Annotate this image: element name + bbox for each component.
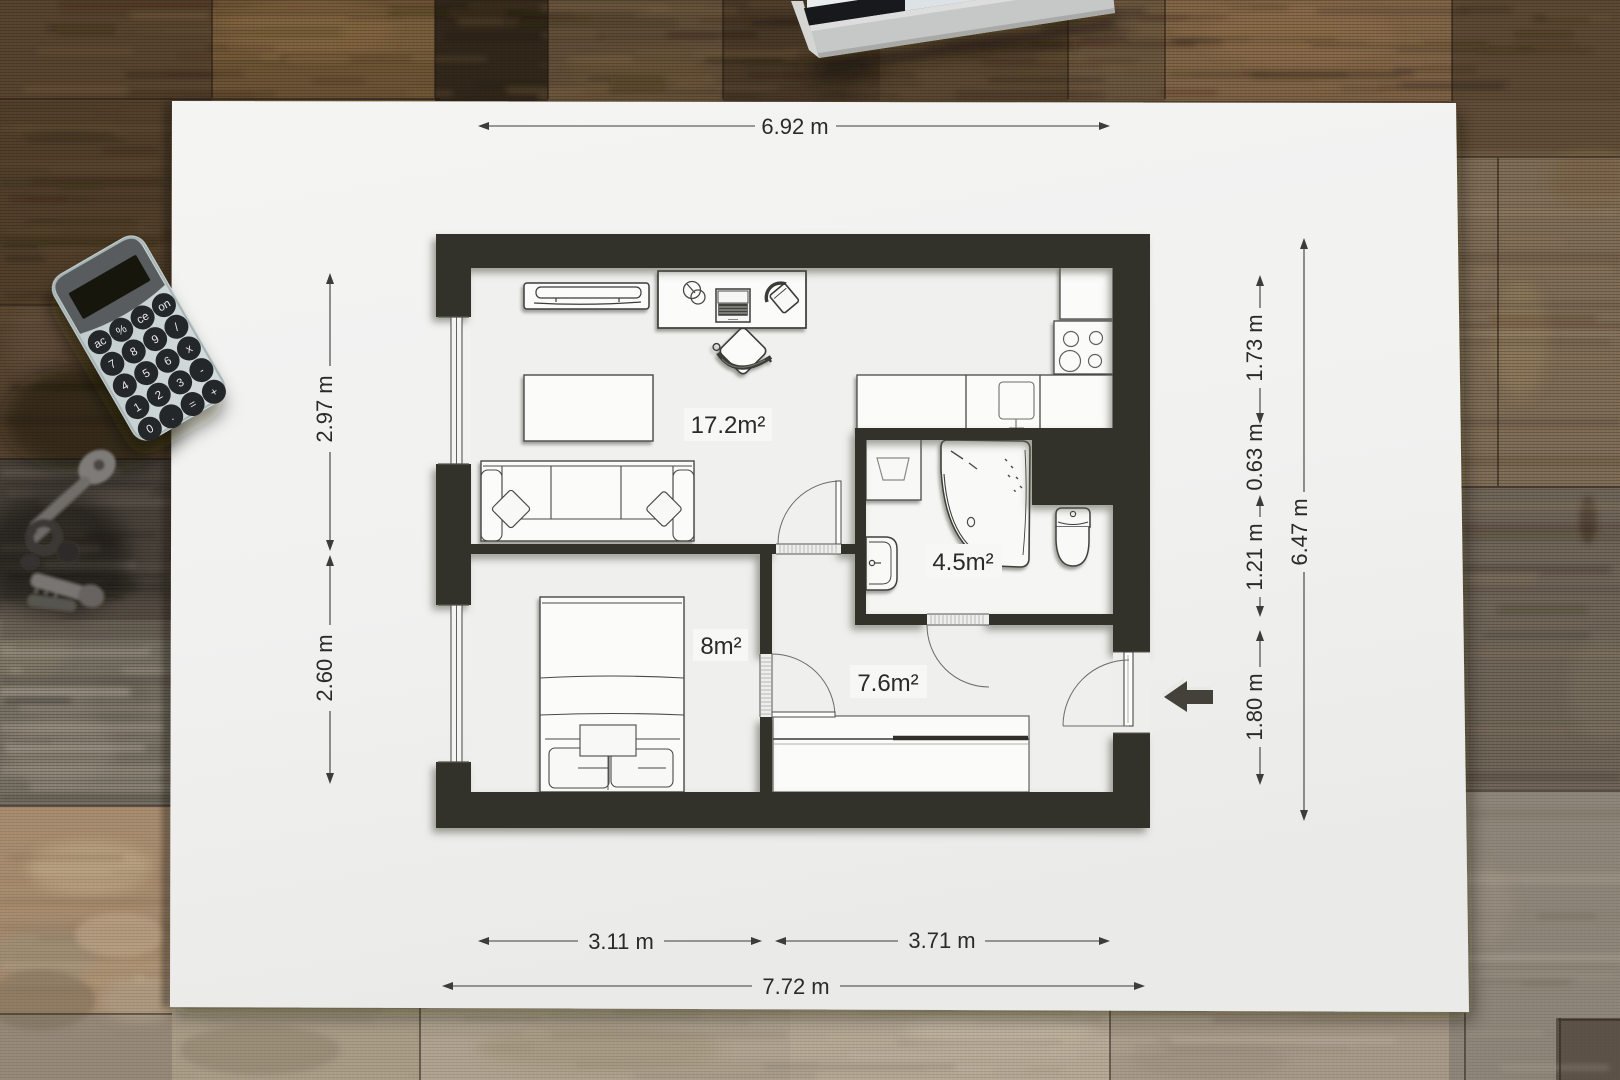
svg-text:2.60 m: 2.60 m: [312, 634, 337, 701]
svg-text:8m²: 8m²: [700, 633, 741, 660]
svg-text:1.80 m: 1.80 m: [1242, 673, 1267, 740]
svg-text:4.5m²: 4.5m²: [932, 549, 993, 576]
svg-text:6.47 m: 6.47 m: [1287, 498, 1312, 565]
svg-text:2.97 m: 2.97 m: [312, 375, 337, 442]
svg-text:17.2m²: 17.2m²: [691, 412, 766, 439]
svg-text:3.71 m: 3.71 m: [908, 928, 975, 953]
svg-text:6.92 m: 6.92 m: [761, 114, 828, 139]
svg-text:3.11 m: 3.11 m: [588, 929, 654, 954]
svg-text:0.63 m: 0.63 m: [1242, 423, 1267, 490]
svg-text:1.73 m: 1.73 m: [1242, 314, 1267, 381]
svg-text:7.6m²: 7.6m²: [857, 670, 918, 697]
svg-text:7.72 m: 7.72 m: [762, 974, 829, 999]
svg-text:1.21 m: 1.21 m: [1242, 523, 1267, 590]
